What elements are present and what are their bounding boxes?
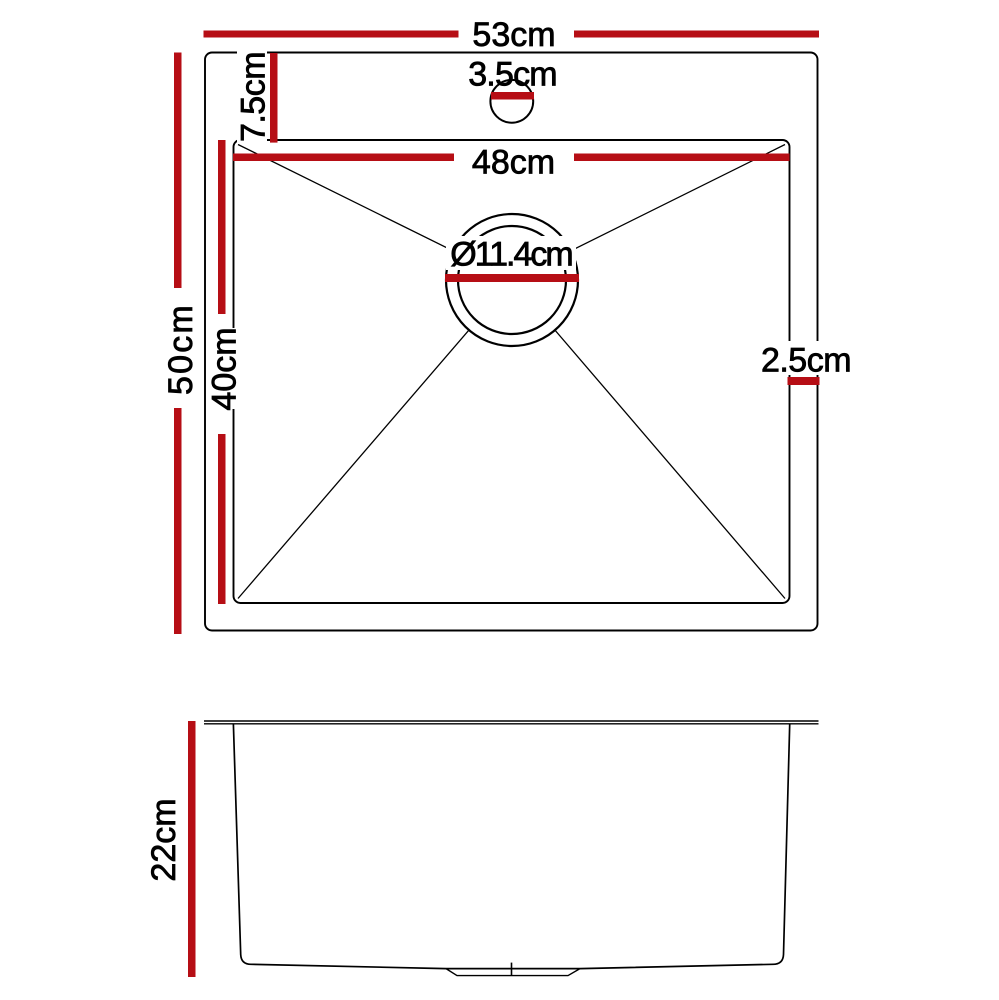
svg-text:53cm: 53cm — [472, 16, 555, 54]
svg-text:50cm: 50cm — [162, 303, 200, 395]
svg-text:7.5cm: 7.5cm — [235, 52, 273, 142]
svg-text:40cm: 40cm — [206, 327, 244, 410]
svg-text:3.5cm: 3.5cm — [468, 55, 557, 93]
svg-text:Ø11.4cm: Ø11.4cm — [450, 236, 572, 274]
svg-text:22cm: 22cm — [145, 798, 183, 881]
svg-text:48cm: 48cm — [472, 144, 555, 182]
svg-text:2.5cm: 2.5cm — [761, 342, 851, 380]
